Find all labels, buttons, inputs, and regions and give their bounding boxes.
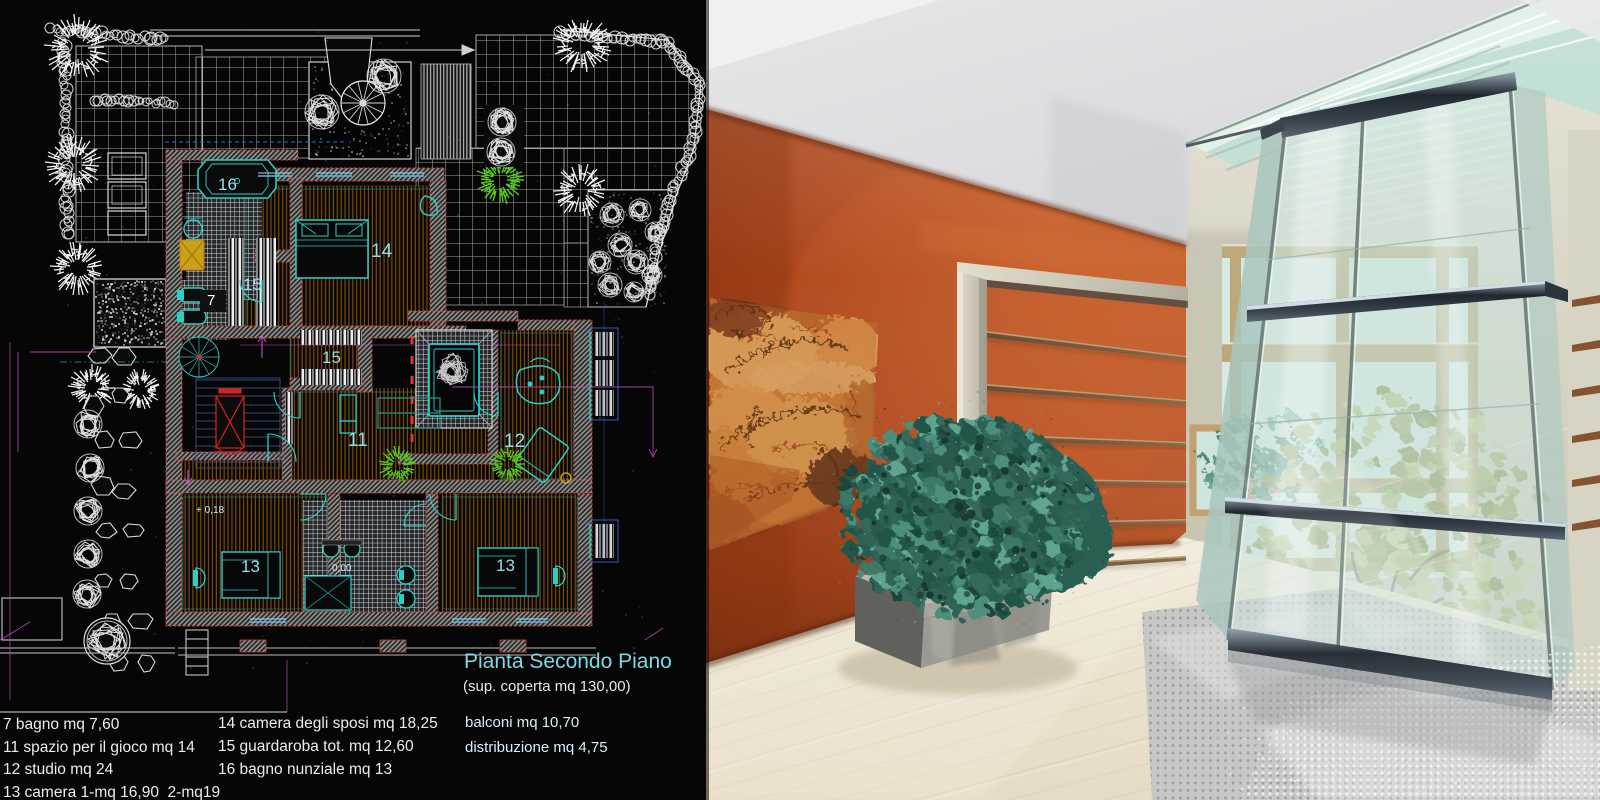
svg-text:11 spazio per il gioco mq 14: 11 spazio per il gioco mq 14: [3, 739, 195, 756]
svg-text:Pianta Secondo Piano: Pianta Secondo Piano: [464, 650, 672, 673]
svg-text:0,00: 0,00: [332, 563, 352, 574]
svg-text:16 bagno nunziale mq 13: 16 bagno nunziale mq 13: [218, 761, 392, 778]
svg-text:+ 0,18: + 0,18: [196, 505, 225, 516]
svg-text:12: 12: [504, 431, 525, 452]
svg-text:15: 15: [322, 348, 341, 367]
svg-text:15: 15: [243, 275, 262, 294]
svg-text:14: 14: [371, 241, 393, 262]
svg-text:14 camera degli sposi mq 18,25: 14 camera degli sposi mq 18,25: [218, 715, 438, 732]
svg-text:15 guardaroba tot. mq 12,60: 15 guardaroba tot. mq 12,60: [218, 738, 414, 755]
svg-text:11: 11: [348, 430, 368, 451]
svg-text:(sup. coperta mq 130,00): (sup. coperta mq 130,00): [463, 678, 631, 695]
svg-text:13: 13: [241, 557, 260, 576]
svg-text:7: 7: [207, 292, 215, 309]
svg-text:12 studio mq 24: 12 studio mq 24: [3, 761, 114, 778]
svg-text:13: 13: [496, 556, 515, 575]
svg-text:7 bagno mq 7,60: 7 bagno mq 7,60: [3, 716, 120, 733]
svg-text:16: 16: [218, 175, 237, 194]
svg-text:balconi mq 10,70: balconi mq 10,70: [465, 714, 579, 731]
svg-text:13 camera 1-mq 16,90 2-mq19: 13 camera 1-mq 16,90 2-mq19: [3, 784, 220, 800]
svg-text:distribuzione mq 4,75: distribuzione mq 4,75: [465, 739, 608, 756]
